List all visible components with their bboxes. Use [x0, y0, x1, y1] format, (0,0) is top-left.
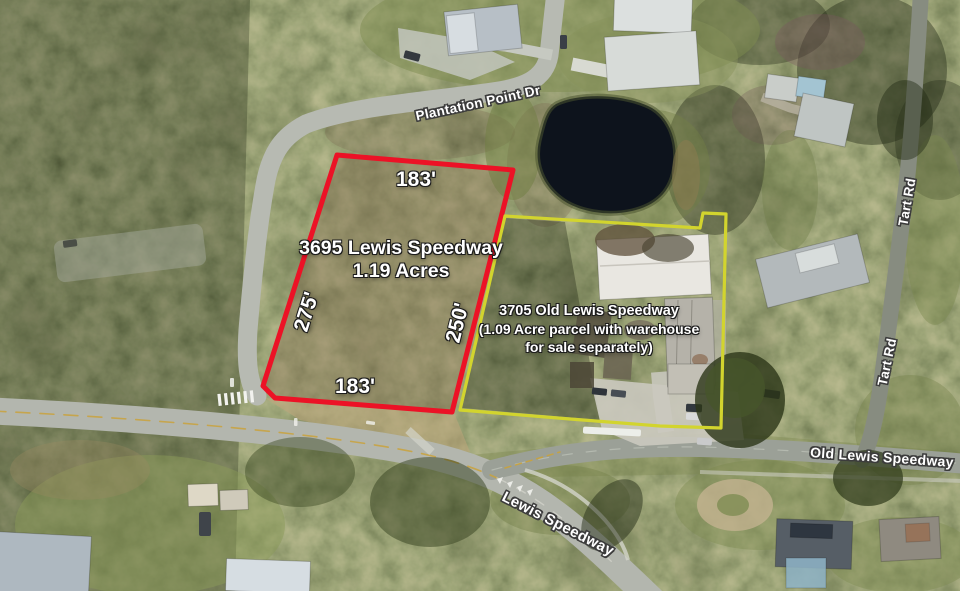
- shed-bottom-left-1: [188, 483, 219, 506]
- house-bottom-left-2: [225, 559, 310, 591]
- house-bottom-right-2: [879, 516, 941, 561]
- shed-bottom-left-2: [220, 490, 249, 511]
- house-top-2: [604, 31, 700, 91]
- satellite-canvas: [0, 0, 960, 591]
- house-top-left: [444, 4, 522, 55]
- house-bottom-left-1: [0, 532, 92, 591]
- house-top-1: [613, 0, 692, 33]
- aerial-parcel-map: 3695 Lewis Speedway 1.19 Acres 183' 183'…: [0, 0, 960, 591]
- shed-right-1: [764, 74, 799, 102]
